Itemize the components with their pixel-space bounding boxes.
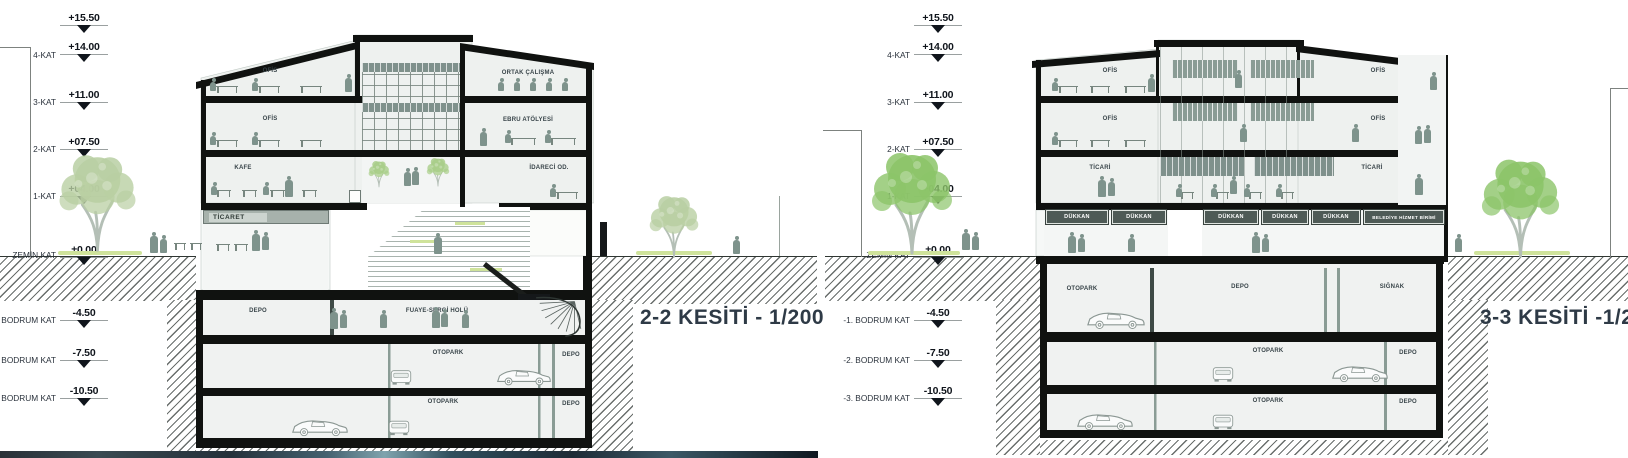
person-figure: [1068, 236, 1076, 253]
person-figure: [1176, 188, 1182, 197]
cafe-table: [302, 190, 317, 197]
architectural-section-sheet: +15.50 +14.00 +11.00 +07.50 +04.00 ±0.00…: [0, 0, 1628, 458]
car-side-icon: [495, 366, 553, 386]
room-label: EBRU ATÖLYESİ: [503, 117, 553, 123]
room-label: TİCARİ: [1089, 165, 1110, 171]
belediye-sign: BELEDİYE HİZMET BİRİMİ: [1364, 210, 1444, 224]
desk: [216, 86, 238, 93]
room-label: KAFE: [234, 165, 251, 171]
person-figure: [733, 240, 740, 254]
person-figure: [498, 82, 504, 91]
room-label: OFİS: [263, 68, 278, 74]
car-back-icon: [1212, 364, 1234, 384]
person-figure: [1148, 78, 1155, 92]
floor-label: 4-KAT: [836, 50, 910, 60]
shops-storefront: [1044, 224, 1444, 256]
desk: [300, 86, 322, 93]
room-label: TİCARİ: [1361, 165, 1382, 171]
person-figure: [1262, 238, 1269, 252]
person-figure: [150, 236, 158, 253]
desk: [216, 140, 238, 147]
person-figure: [340, 314, 347, 328]
person-figure: [1455, 238, 1462, 252]
street-table: [174, 243, 186, 250]
elevation-value: +15.50: [60, 13, 108, 24]
elevation-mark: -4.50: [60, 308, 108, 328]
datum-triangle-icon: [77, 398, 91, 406]
car-back-icon: [390, 368, 412, 386]
room-label: OTOPARK: [1253, 348, 1284, 354]
person-figure: [480, 132, 487, 146]
car-side-icon: [1330, 362, 1390, 383]
room-label: ORTAK ÇALIŞMA: [502, 70, 554, 76]
elevation-mark: -10.50: [914, 386, 962, 406]
elevation-mark: -7.50: [60, 348, 108, 368]
floor-label: 3-KAT: [836, 97, 910, 107]
tree: [630, 190, 718, 258]
elevation-mark: +14.00: [60, 42, 108, 62]
datum-triangle-icon: [931, 398, 945, 406]
person-figure: [252, 82, 258, 91]
person-figure: [1128, 238, 1135, 252]
floor-label: 1-KAT: [0, 191, 56, 201]
ticari-transom: [1160, 157, 1244, 176]
slat-window: [1172, 103, 1238, 121]
shop-sign: DÜKKAN: [1112, 210, 1166, 224]
person-figure: [432, 311, 440, 328]
person-figure: [1430, 76, 1437, 90]
person-figure: [562, 82, 568, 91]
tree: [1468, 150, 1573, 258]
person-figure: [550, 188, 556, 197]
elevation-mark: +11.00: [914, 90, 962, 110]
ground-hatch: [1040, 440, 1448, 455]
ticaret-sign: TİCARET: [203, 210, 329, 224]
workshop-table: [510, 138, 536, 145]
slat-window: [1250, 60, 1314, 78]
elevation-mark: -7.50: [914, 348, 962, 368]
planter-box: [349, 190, 361, 203]
shop-sign: DÜKKAN: [1312, 210, 1360, 224]
datum-triangle-icon: [931, 25, 945, 33]
room-label: OFİS: [1371, 116, 1386, 122]
desk: [1090, 86, 1110, 93]
person-figure: [1244, 188, 1250, 197]
person-figure: [1240, 128, 1247, 142]
datum-triangle-icon: [77, 25, 91, 33]
room-label: OFİS: [1371, 68, 1386, 74]
cafe-table: [216, 190, 231, 197]
person-figure: [1108, 182, 1115, 196]
person-figure: [1276, 188, 1282, 197]
person-figure: [210, 82, 216, 91]
ticari-transom: [1254, 157, 1334, 176]
car-back-icon: [388, 418, 410, 437]
floor-label: -3. BODRUM KAT: [0, 393, 56, 403]
person-figure: [1230, 180, 1237, 194]
slat-window: [1172, 60, 1238, 78]
street-lamp: [779, 196, 780, 256]
person-figure: [380, 314, 387, 328]
person-figure: [462, 314, 469, 328]
person-figure: [441, 313, 448, 327]
person-figure: [545, 134, 551, 143]
elevation-mark: -10.50: [60, 386, 108, 406]
room-label: DEPO: [249, 308, 267, 314]
datum-triangle-icon: [77, 257, 91, 265]
floor-label: -2. BODRUM KAT: [0, 355, 56, 365]
datum-triangle-icon: [77, 320, 91, 328]
room-label: OTOPARK: [1067, 286, 1098, 292]
person-figure: [962, 233, 970, 250]
ground-hatch: [592, 300, 633, 451]
datum-triangle-icon: [931, 360, 945, 368]
person-figure: [1252, 236, 1260, 253]
person-figure: [330, 312, 338, 329]
slat-window: [1250, 103, 1314, 121]
room-label: DEPO: [562, 401, 580, 407]
spiral-stair: [530, 296, 586, 338]
car-side-icon: [1085, 308, 1147, 330]
person-figure: [546, 82, 552, 91]
tree: [50, 140, 145, 258]
elevation-mark: +15.50: [914, 13, 962, 33]
elevation-mark: -4.50: [914, 308, 962, 328]
person-figure: [1078, 238, 1085, 252]
workshop-table: [550, 138, 576, 145]
room-label: OTOPARK: [428, 399, 459, 405]
person-figure: [1424, 129, 1431, 143]
room-label: OTOPARK: [1253, 398, 1284, 404]
neighbor-building-outline: [1610, 88, 1628, 257]
floor-label: -1. BODRUM KAT: [836, 315, 910, 325]
person-figure: [211, 186, 217, 195]
person-figure: [345, 78, 352, 92]
person-figure: [210, 136, 216, 145]
person-figure: [252, 234, 260, 251]
desk: [1124, 140, 1146, 147]
room-label: DEPO: [1399, 399, 1417, 405]
step-cushion: [455, 222, 485, 225]
ground-hatch: [1448, 256, 1628, 301]
desk: [1058, 140, 1078, 147]
datum-triangle-icon: [931, 257, 945, 265]
office-desk: [556, 192, 578, 199]
datum-triangle-icon: [77, 102, 91, 110]
tree: [862, 140, 962, 258]
shop-sign: DÜKKAN: [1204, 210, 1258, 224]
car-side-icon: [290, 416, 350, 437]
cafe-table: [1215, 192, 1229, 199]
ground-hatch: [592, 256, 817, 304]
floor-label: 2-KAT: [0, 144, 56, 154]
person-figure: [262, 236, 269, 250]
shops-passage: [1168, 210, 1202, 256]
person-figure: [972, 236, 979, 250]
elevation-mark: +15.50: [60, 13, 108, 33]
street-retaining-wall: [600, 222, 607, 256]
photo-strip: [0, 451, 818, 458]
elevation-mark: +11.00: [60, 90, 108, 110]
room-label: DEPO: [1231, 284, 1249, 290]
room-label: OFİS: [1103, 68, 1118, 74]
person-figure: [285, 180, 293, 197]
person-figure: [1352, 128, 1359, 142]
person-figure: [1052, 136, 1058, 145]
floor-label: 3-KAT: [0, 97, 56, 107]
atrium-spandrel: [362, 63, 460, 72]
desk: [258, 140, 280, 147]
cafe-table: [270, 190, 285, 197]
cafe-table: [1180, 192, 1194, 199]
section-title-2-2: 2-2 KESİTİ - 1/200: [640, 306, 824, 330]
person-figure: [1211, 188, 1217, 197]
desk: [1090, 140, 1110, 147]
room-label: SIĞNAK: [1380, 284, 1405, 290]
person-figure: [263, 186, 269, 195]
floor-label: -3. BODRUM KAT: [836, 393, 910, 403]
car-back-icon: [1212, 412, 1234, 431]
person-figure: [1098, 180, 1106, 197]
shop-sign: DÜKKAN: [1046, 210, 1108, 224]
shop-table: [216, 244, 230, 251]
shop-sign: DÜKKAN: [1262, 210, 1308, 224]
room-label: OFİS: [263, 116, 278, 122]
desk: [1124, 86, 1146, 93]
ticaret-sign-label: TİCARET: [209, 213, 267, 222]
person-figure: [404, 172, 411, 186]
person-figure: [434, 237, 442, 254]
person-figure: [514, 82, 520, 91]
floor-label: -1. BODRUM KAT: [0, 315, 56, 325]
floor-label: -2. BODRUM KAT: [836, 355, 910, 365]
desk: [300, 140, 322, 147]
person-figure: [1052, 82, 1058, 91]
person-figure: [505, 134, 511, 143]
room-label: OTOPARK: [433, 350, 464, 356]
atrium-spandrel: [362, 103, 460, 112]
desk: [1058, 86, 1078, 93]
cafe-table: [1280, 192, 1294, 199]
atrium-planter-tree: [366, 150, 392, 196]
datum-triangle-icon: [77, 54, 91, 62]
street-table: [190, 243, 202, 250]
person-figure: [1415, 178, 1423, 195]
cafe-table: [242, 190, 257, 197]
shop-table: [234, 244, 248, 251]
datum-triangle-icon: [931, 102, 945, 110]
floor-label: 4-KAT: [0, 50, 56, 60]
section-title-3-3: 3-3 KESİTİ -1/200: [1480, 306, 1628, 330]
datum-triangle-icon: [77, 360, 91, 368]
car-side-icon: [1075, 410, 1135, 431]
person-figure: [1415, 130, 1422, 144]
atrium-planter-tree: [424, 146, 452, 196]
room-label: İDARECİ OD.: [529, 165, 568, 171]
person-figure: [160, 239, 167, 253]
floor-label: ZEMİN KAT: [0, 250, 56, 260]
room-label: DEPO: [1399, 350, 1417, 356]
person-figure: [412, 171, 419, 185]
elevation-mark: +14.00: [914, 42, 962, 62]
person-figure: [530, 82, 536, 91]
person-figure: [252, 136, 258, 145]
cafe-table: [1248, 192, 1262, 199]
room-label: OFİS: [1103, 116, 1118, 122]
datum-triangle-icon: [931, 54, 945, 62]
datum-triangle-icon: [931, 320, 945, 328]
desk: [258, 86, 280, 93]
room-label: DEPO: [562, 352, 580, 358]
person-figure: [1235, 74, 1242, 88]
